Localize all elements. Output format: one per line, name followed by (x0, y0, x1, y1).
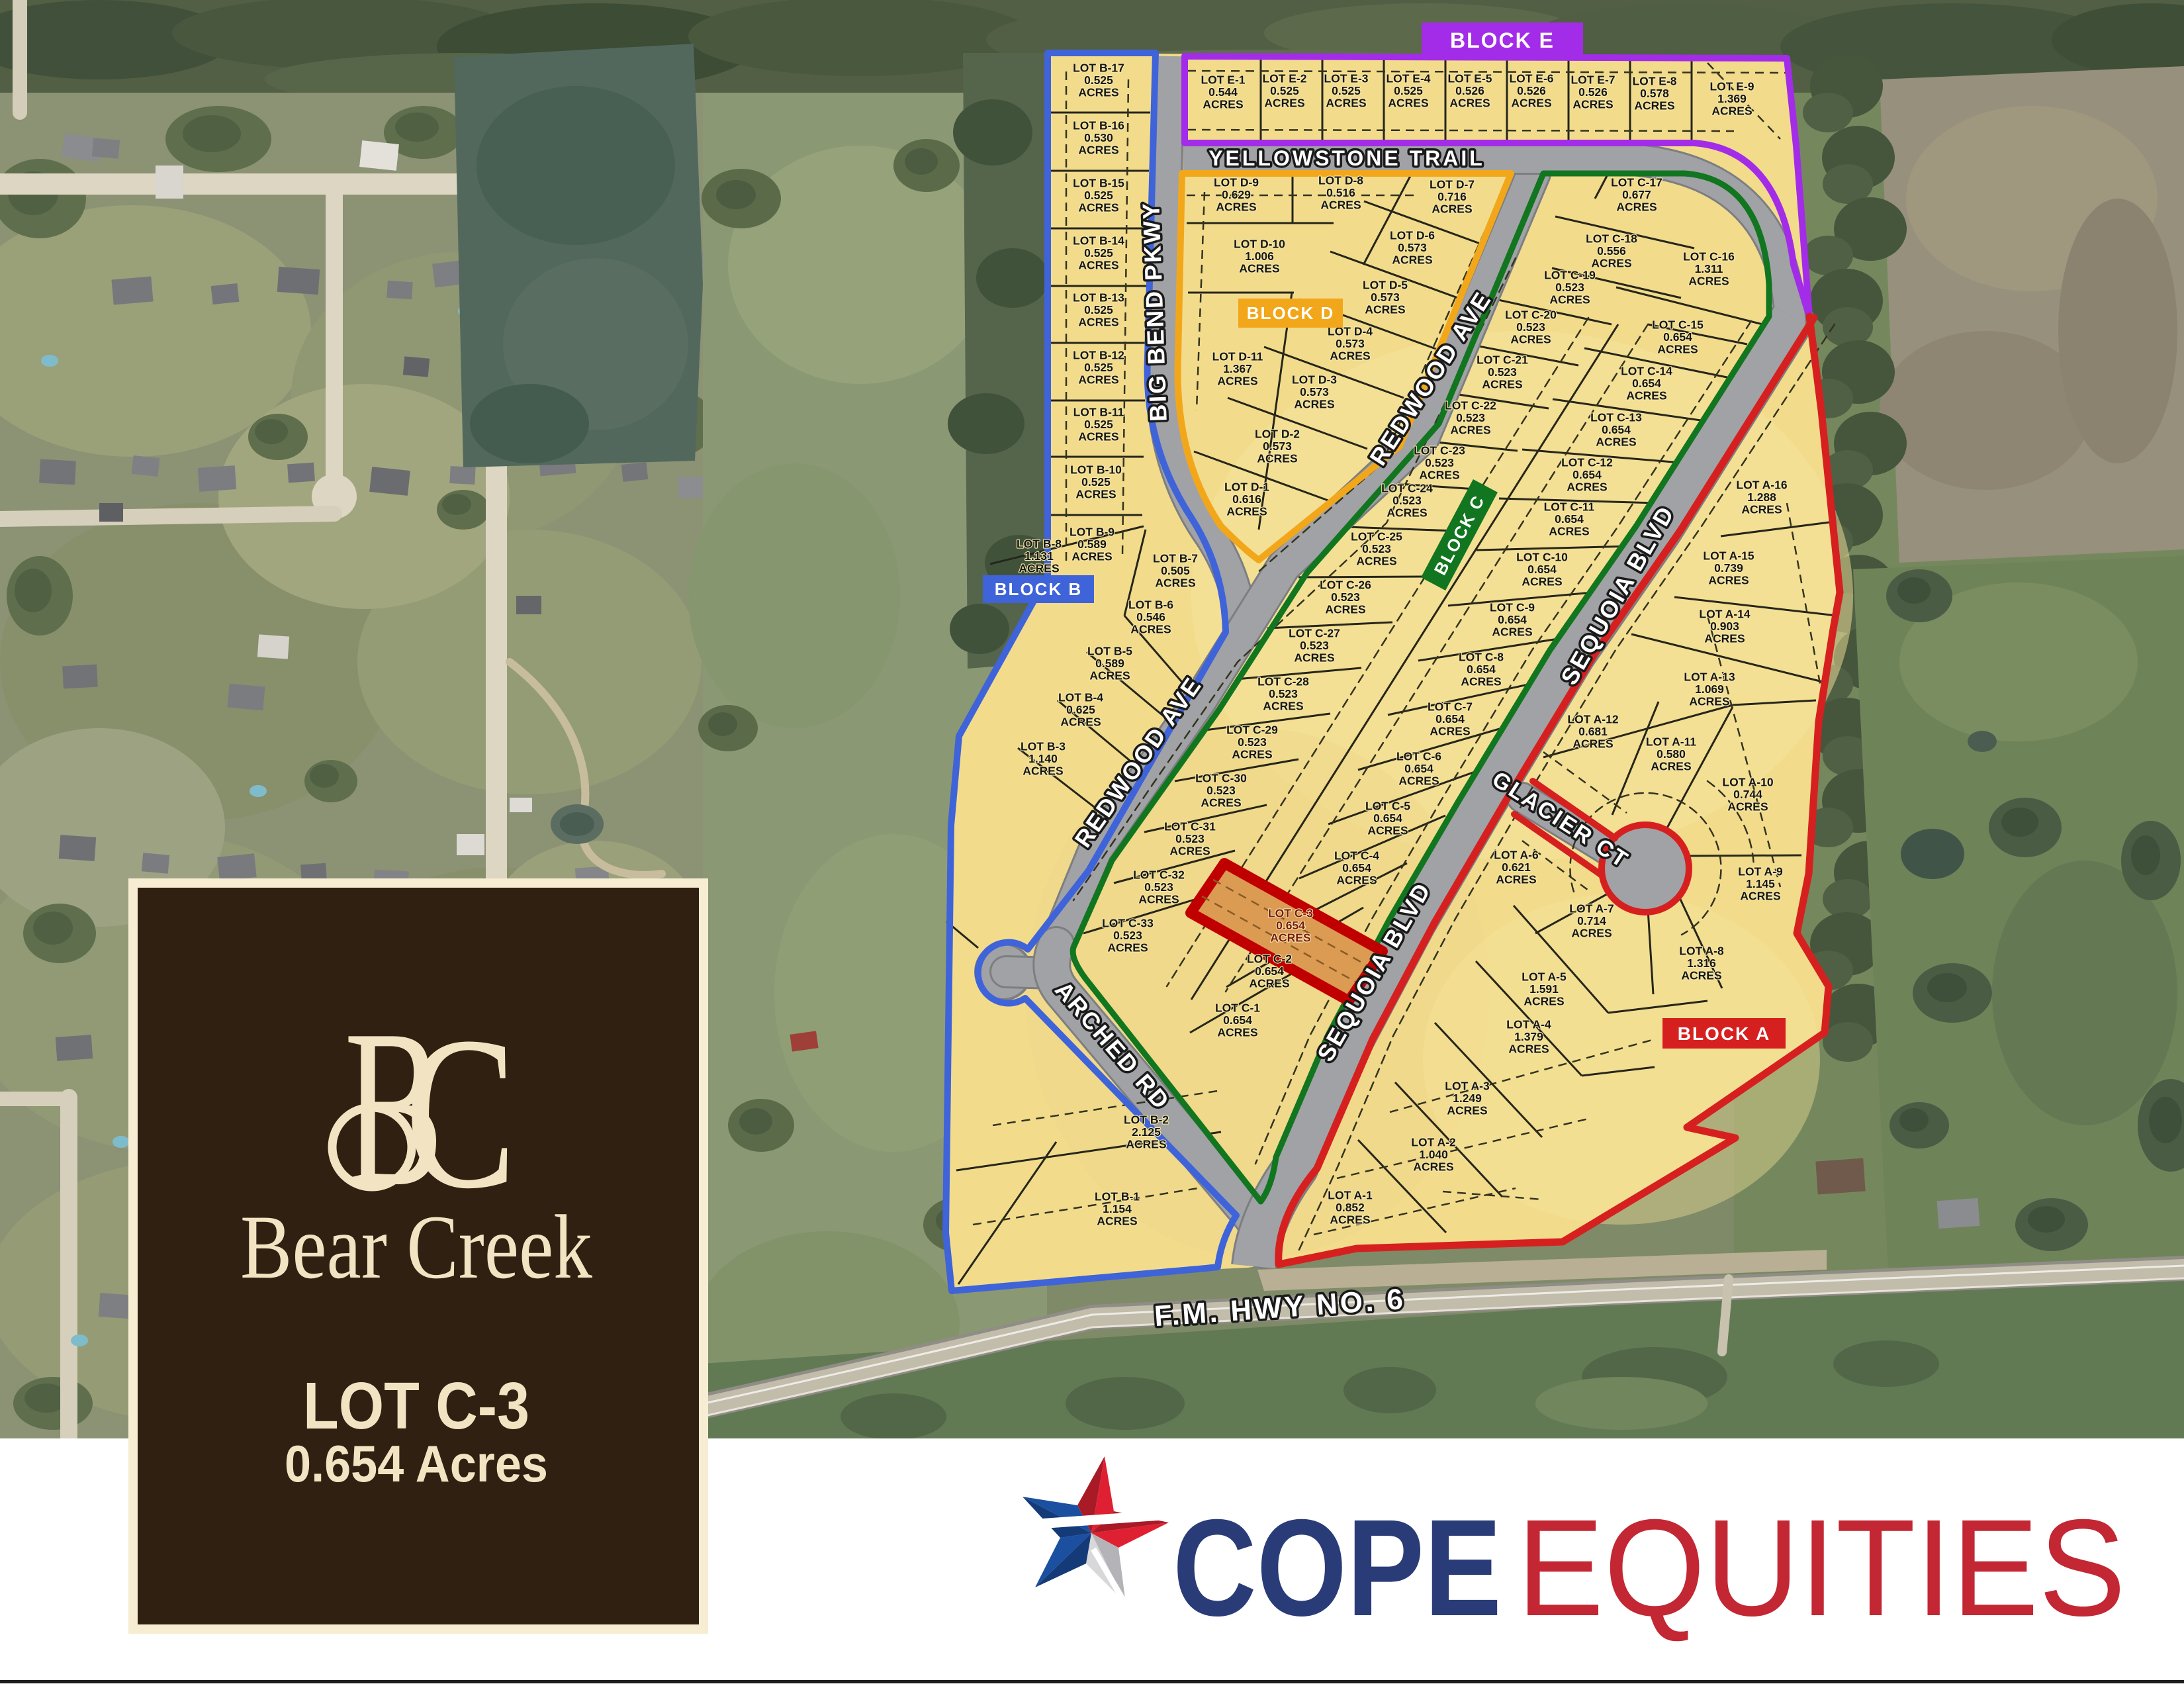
svg-text:BLOCK E: BLOCK E (1450, 28, 1555, 52)
svg-text:Bear Creek: Bear Creek (240, 1196, 592, 1297)
svg-text:COPE: COPE (1173, 1491, 1502, 1645)
svg-text:BLOCK A: BLOCK A (1678, 1023, 1771, 1044)
svg-text:LOT C-3: LOT C-3 (303, 1369, 529, 1443)
svg-text:BLOCK B: BLOCK B (995, 579, 1082, 599)
svg-text:0.654 Acres: 0.654 Acres (285, 1434, 548, 1493)
svg-text:YELLOWSTONE TRAIL: YELLOWSTONE TRAIL (1208, 146, 1485, 170)
svg-text:EQUITIES: EQUITIES (1517, 1491, 2126, 1645)
svg-text:BLOCK D: BLOCK D (1247, 303, 1334, 323)
